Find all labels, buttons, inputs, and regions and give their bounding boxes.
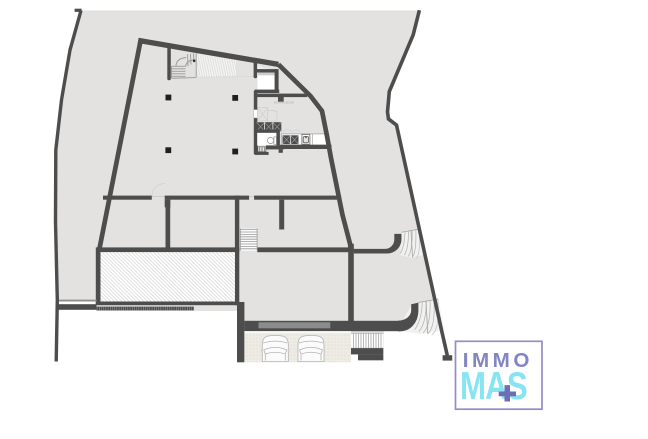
svg-text:WOHNKUECHE: WOHNKUECHE <box>274 100 294 104</box>
svg-text:MAS: MAS <box>460 365 527 408</box>
